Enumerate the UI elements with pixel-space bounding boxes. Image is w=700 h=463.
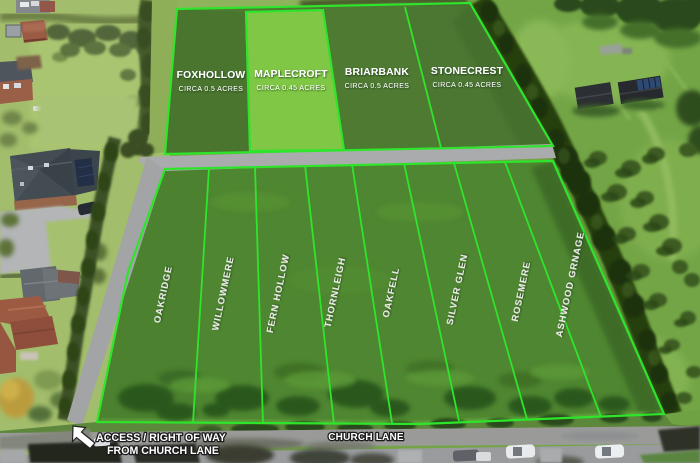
svg-text:FROM CHURCH LANE: FROM CHURCH LANE bbox=[107, 445, 219, 457]
svg-text:FOXHOLLOW: FOXHOLLOW bbox=[177, 70, 246, 81]
svg-text:MAPLECROFT: MAPLECROFT bbox=[254, 69, 328, 80]
svg-text:CIRCA 0.45 ACRES: CIRCA 0.45 ACRES bbox=[256, 85, 325, 92]
svg-text:CIRCA 0.45 ACRES: CIRCA 0.45 ACRES bbox=[432, 82, 501, 89]
svg-text:CIRCA 0.5 ACRES: CIRCA 0.5 ACRES bbox=[345, 83, 410, 90]
svg-text:ACCESS / RIGHT OF WAY: ACCESS / RIGHT OF WAY bbox=[96, 432, 226, 444]
svg-text:CHURCH LANE: CHURCH LANE bbox=[328, 432, 404, 443]
svg-text:STONECREST: STONECREST bbox=[431, 66, 504, 77]
svg-text:CIRCA 0.5 ACRES: CIRCA 0.5 ACRES bbox=[179, 86, 244, 93]
svg-text:BRIARBANK: BRIARBANK bbox=[345, 67, 410, 78]
